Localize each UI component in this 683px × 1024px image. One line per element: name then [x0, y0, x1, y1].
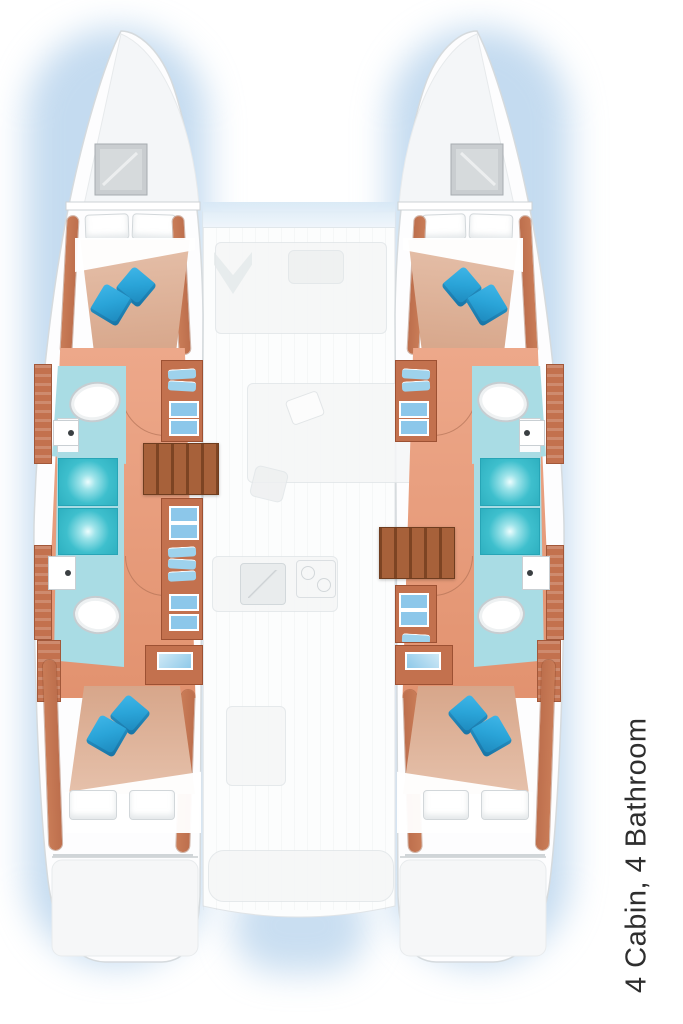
shower-icon — [480, 458, 540, 506]
vanity-faucet-icon — [519, 420, 545, 446]
coachroof-windshield — [203, 202, 395, 228]
bed-pillow-icon — [423, 790, 469, 820]
hanging-clothes-icon — [168, 570, 196, 581]
hanging-clothes-icon — [402, 633, 430, 643]
bed-frame-rail — [60, 216, 78, 354]
folded-towel-icon — [399, 593, 429, 610]
vanity-faucet-icon — [53, 420, 79, 446]
hull-side-cabinet — [546, 364, 564, 464]
folded-towel-icon — [169, 614, 199, 631]
wardrobe — [395, 585, 437, 643]
shower-icon — [480, 508, 540, 555]
hanging-clothes-icon — [168, 558, 196, 569]
bed-pillow-icon — [85, 213, 130, 241]
shower-icon — [58, 458, 118, 506]
hull-side-cabinet — [34, 364, 52, 464]
bed-pillow-icon — [132, 213, 177, 241]
vanity-faucet-icon — [522, 556, 550, 590]
hanging-clothes-icon — [168, 546, 196, 557]
aft-bulkhead-line — [405, 854, 545, 857]
vanity-faucet-icon — [48, 556, 76, 590]
wardrobe — [161, 498, 203, 640]
hanging-clothes-icon — [402, 368, 430, 379]
bed-pillow-icon — [481, 790, 529, 820]
folded-towel-icon — [169, 419, 199, 436]
bed-pillow-icon — [69, 790, 117, 820]
tv-icon — [405, 652, 441, 670]
folded-towel-icon — [169, 506, 199, 523]
bed-frame-rail — [519, 216, 537, 354]
tv-icon — [157, 652, 193, 670]
forward-cockpit-table — [288, 250, 344, 284]
bed-pillow-icon — [422, 213, 467, 241]
hull-starboard — [395, 0, 565, 1024]
shower-icon — [58, 508, 118, 555]
bed-pillow-icon — [129, 790, 175, 820]
hanging-clothes-icon — [168, 368, 196, 379]
wardrobe — [395, 360, 437, 442]
wardrobe — [161, 360, 203, 442]
catamaran-floorplan: 4 Cabin, 4 Bathroom — [0, 0, 683, 1024]
companionway-stairs — [143, 443, 219, 495]
folded-towel-icon — [169, 401, 199, 418]
folded-towel-icon — [399, 610, 429, 627]
hull-port — [33, 0, 203, 1024]
companionway-stairs — [379, 527, 455, 579]
folded-towel-icon — [399, 401, 429, 418]
aft-cockpit-bench — [208, 850, 394, 902]
folded-towel-icon — [169, 594, 199, 611]
stove-burners-icon — [296, 560, 336, 598]
bed-pillow-icon — [469, 213, 514, 241]
hanging-clothes-icon — [168, 380, 196, 391]
plan-caption: 4 Cabin, 4 Bathroom — [608, 690, 666, 1020]
aft-bulkhead-line — [53, 854, 193, 857]
galley-sink-icon — [240, 563, 286, 605]
cockpit-table — [226, 706, 286, 786]
hanging-clothes-icon — [402, 380, 430, 391]
folded-towel-icon — [399, 419, 429, 436]
folded-towel-icon — [169, 523, 199, 540]
